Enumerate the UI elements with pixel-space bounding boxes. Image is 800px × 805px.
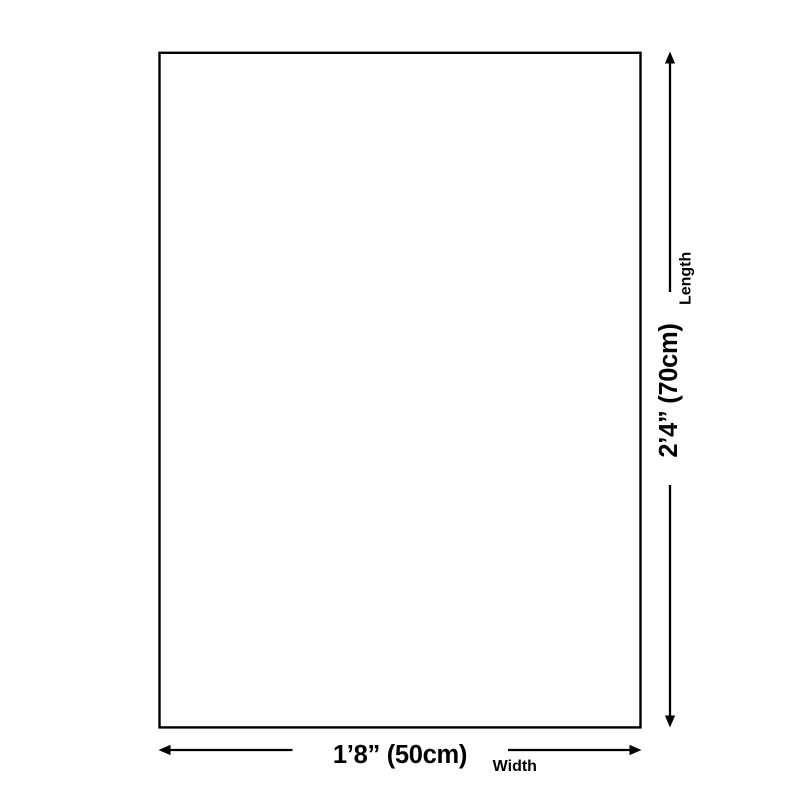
svg-text:1’8” (50cm): 1’8” (50cm) <box>333 741 467 769</box>
svg-text:Length: Length <box>678 252 695 305</box>
svg-text:Width: Width <box>493 758 537 775</box>
svg-text:2’4” (70cm): 2’4” (70cm) <box>655 323 683 457</box>
